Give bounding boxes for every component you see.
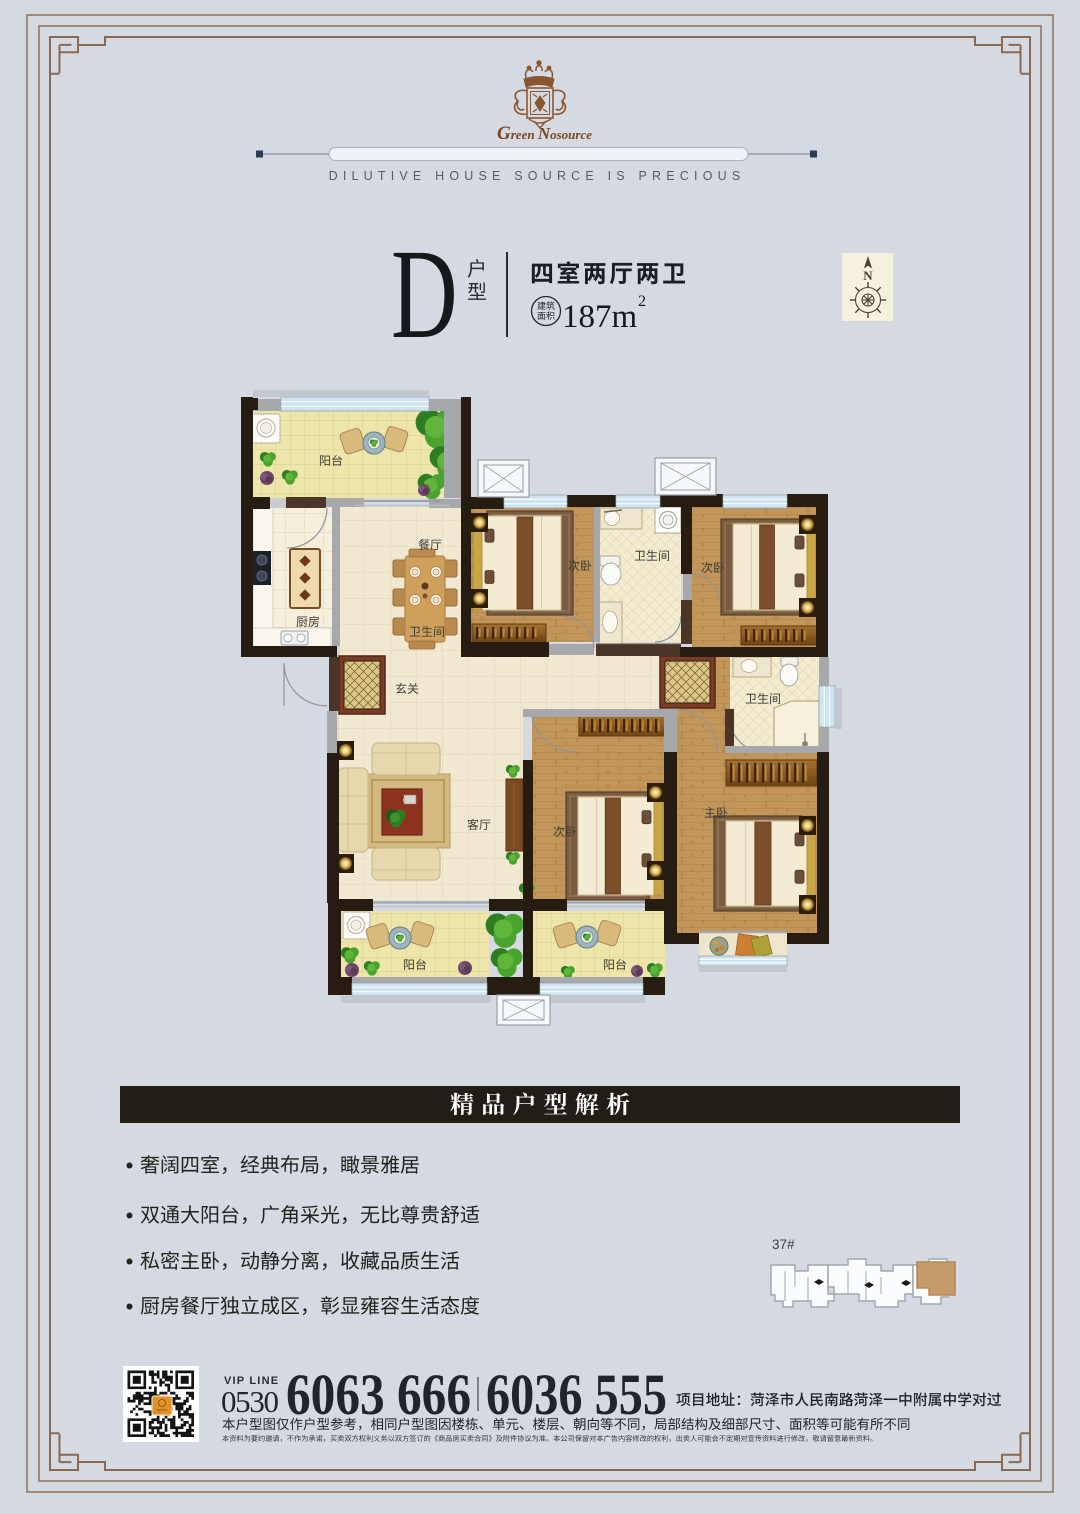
svg-text:187m: 187m <box>562 299 638 335</box>
svg-text:0530: 0530 <box>221 1384 279 1419</box>
svg-text:6063 666: 6063 666 <box>286 1362 471 1427</box>
svg-text:6036 555: 6036 555 <box>486 1362 667 1427</box>
svg-text:D: D <box>391 225 458 366</box>
svg-text:2: 2 <box>638 293 646 310</box>
svg-text:DILUTIVE HOUSE SOURCE IS P: DILUTIVE HOUSE SOURCE IS PRECIOUS <box>329 169 746 183</box>
svg-text:37#: 37# <box>772 1237 795 1252</box>
svg-text:Green Nosource: Green Nosource <box>497 123 592 144</box>
svg-text:N: N <box>863 268 873 283</box>
